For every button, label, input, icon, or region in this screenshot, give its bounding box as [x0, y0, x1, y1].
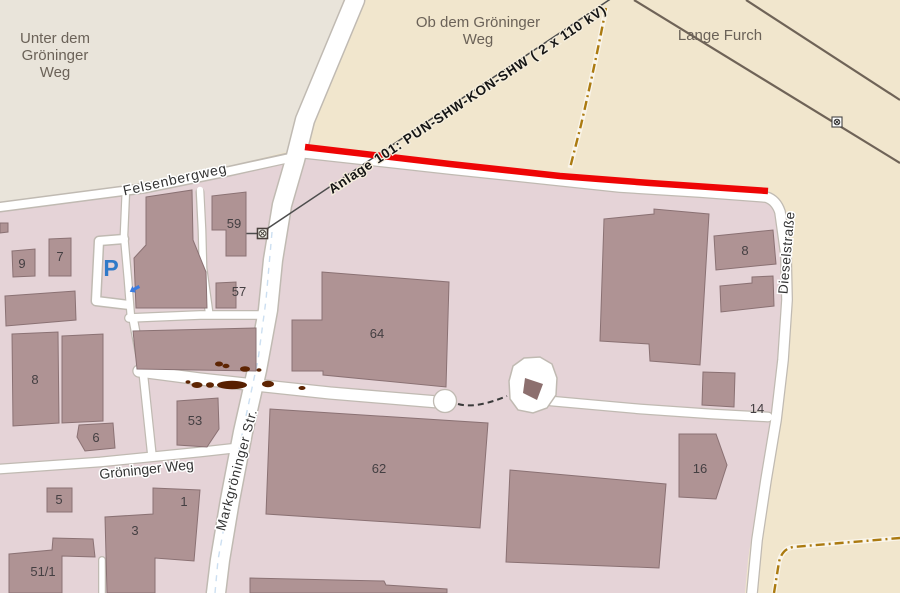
svg-text:14: 14 — [750, 401, 764, 416]
svg-text:P: P — [103, 255, 118, 281]
svg-text:59: 59 — [227, 216, 241, 231]
svg-text:Ob dem Gröninger: Ob dem Gröninger — [416, 14, 540, 31]
svg-text:8: 8 — [31, 372, 38, 387]
svg-text:3: 3 — [131, 523, 138, 538]
svg-text:8: 8 — [741, 243, 748, 258]
svg-text:9: 9 — [18, 256, 25, 271]
svg-text:16: 16 — [693, 461, 707, 476]
svg-text:53: 53 — [188, 413, 202, 428]
svg-text:64: 64 — [370, 326, 384, 341]
svg-text:62: 62 — [372, 461, 386, 476]
svg-text:6: 6 — [92, 430, 99, 445]
svg-text:7: 7 — [56, 249, 63, 264]
svg-text:5: 5 — [55, 492, 62, 507]
svg-text:Gröninger: Gröninger — [22, 47, 89, 64]
svg-text:Weg: Weg — [40, 64, 71, 81]
svg-text:Weg: Weg — [463, 31, 494, 48]
svg-text:57: 57 — [232, 284, 246, 299]
svg-text:Lange Furch: Lange Furch — [678, 27, 762, 44]
svg-text:1: 1 — [180, 494, 187, 509]
svg-text:Unter dem: Unter dem — [20, 30, 90, 47]
svg-text:51/1: 51/1 — [30, 564, 55, 579]
